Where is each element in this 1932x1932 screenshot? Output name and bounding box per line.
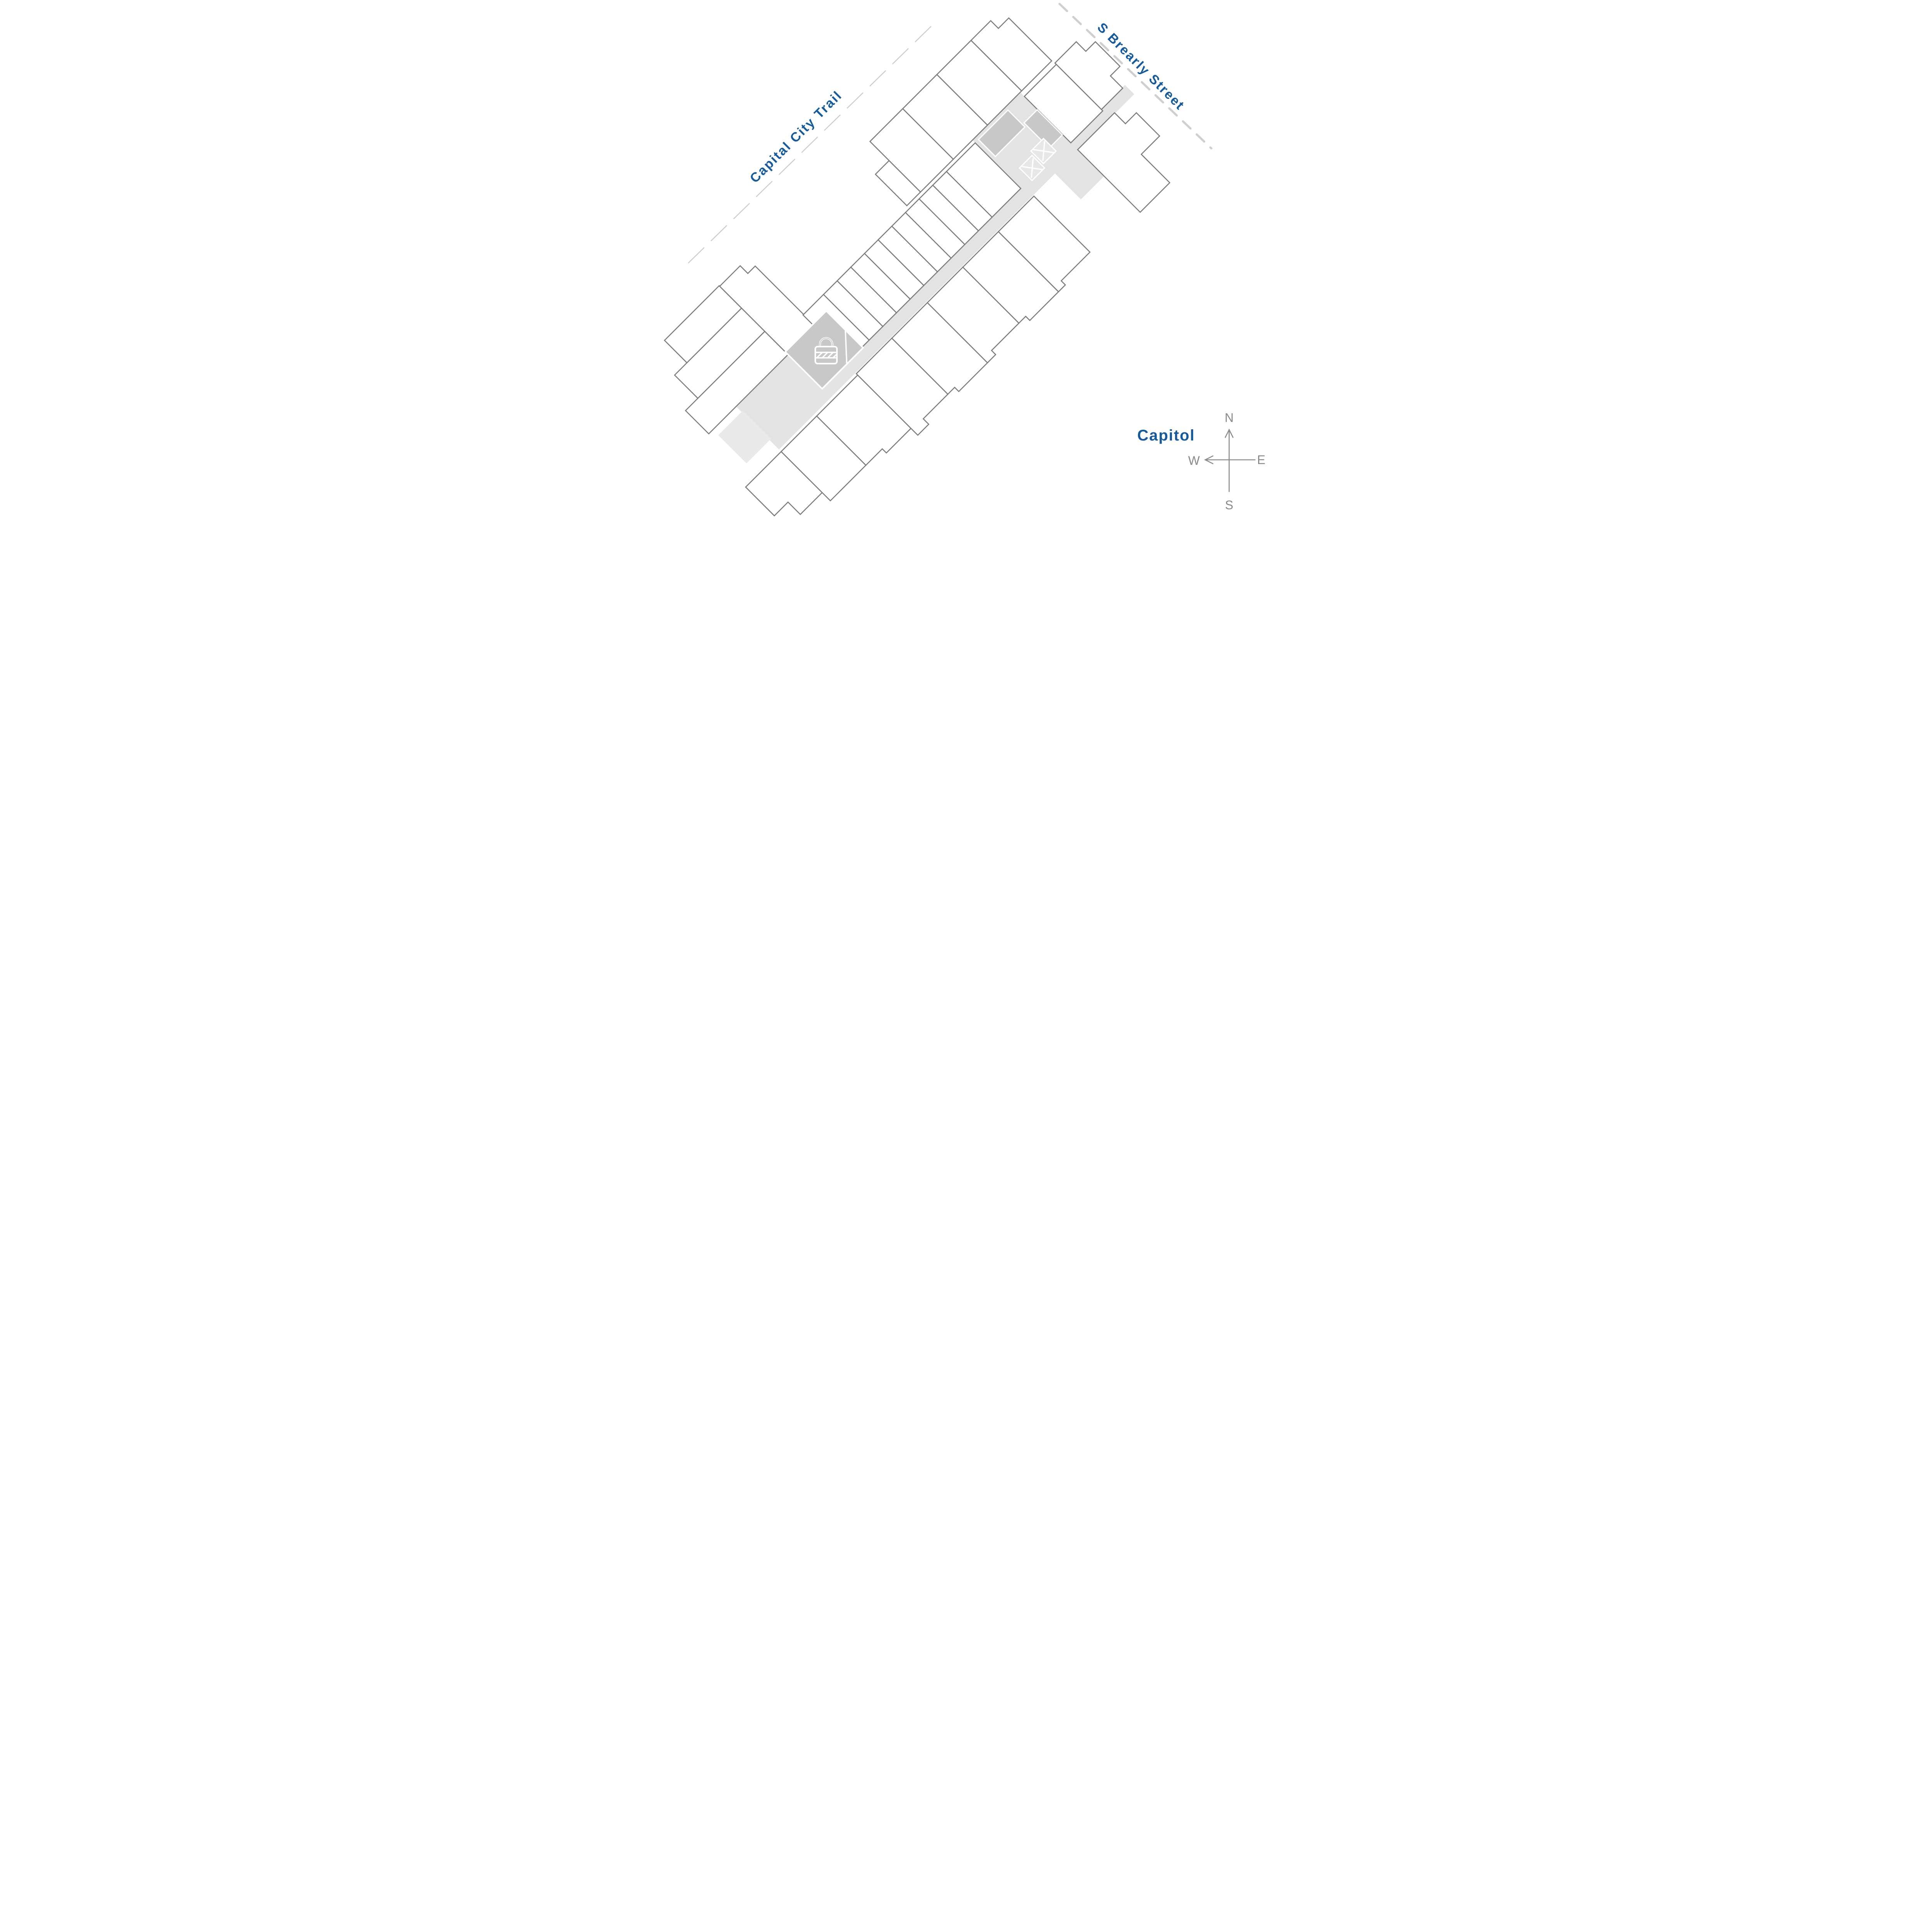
compass-east-label: E bbox=[1257, 453, 1265, 467]
compass-west-label: W bbox=[1188, 454, 1200, 468]
compass-south-label: S bbox=[1225, 498, 1233, 512]
capitol-label: Capitol bbox=[1137, 427, 1195, 444]
building-plan bbox=[663, 0, 1203, 519]
trail-label: Capital City Trail bbox=[747, 88, 845, 186]
site-plan-page: Capital City Trail S Brearly Street Capi… bbox=[663, 0, 1269, 519]
site-plan-map: Capital City Trail S Brearly Street Capi… bbox=[663, 0, 1269, 519]
compass-north-label: N bbox=[1225, 411, 1233, 425]
compass: N S E W bbox=[1188, 411, 1265, 512]
